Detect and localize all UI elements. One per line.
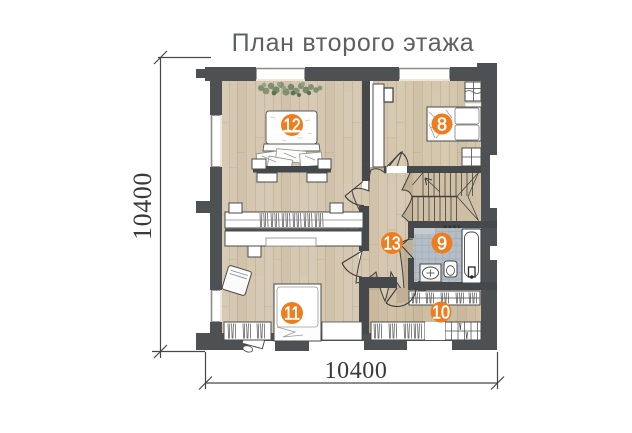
svg-text:11: 11 <box>284 304 300 324</box>
svg-text:10400: 10400 <box>325 358 388 384</box>
svg-text:10: 10 <box>432 303 450 323</box>
svg-text:10400: 10400 <box>128 172 157 240</box>
svg-text:8: 8 <box>437 115 447 135</box>
svg-text:План второго этажа: План второго этажа <box>232 29 475 57</box>
svg-text:9: 9 <box>437 234 447 254</box>
svg-text:13: 13 <box>384 234 401 254</box>
